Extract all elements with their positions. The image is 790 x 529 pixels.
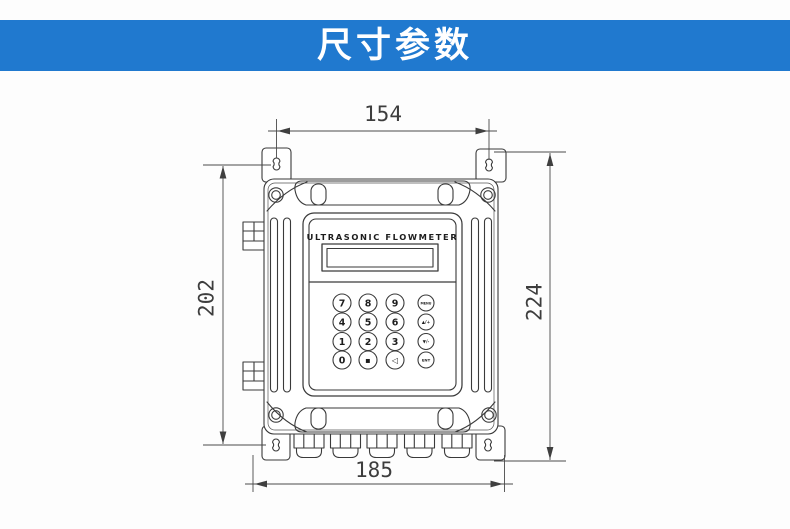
dimension-label-left: 202 — [195, 279, 219, 317]
arrowhead-down-icon — [220, 432, 227, 445]
arrowhead-up-icon — [220, 166, 227, 179]
arrowhead-right-icon — [491, 481, 504, 488]
svg-text:◁: ◁ — [391, 356, 398, 365]
svg-text:2: 2 — [365, 337, 372, 348]
svg-text:▼/-: ▼/- — [423, 339, 430, 345]
arrowhead-up-icon — [547, 154, 554, 167]
svg-text:ENT: ENT — [422, 357, 431, 362]
section-title-bar: 尺寸参数 — [0, 20, 790, 71]
dimension-label-top: 154 — [364, 102, 402, 126]
dimension-right-height: 224 — [494, 152, 566, 461]
svg-text:9: 9 — [392, 298, 399, 309]
hinge-block-bottom — [243, 362, 266, 390]
section-title: 尺寸参数 — [317, 28, 473, 63]
svg-text:0: 0 — [339, 355, 346, 366]
svg-text:▲/+: ▲/+ — [422, 320, 431, 326]
arrowhead-right-icon — [476, 128, 489, 135]
dimension-label-bottom: 185 — [355, 458, 393, 482]
svg-text:▪: ▪ — [365, 356, 370, 365]
dimension-top-width: 154 — [268, 102, 497, 160]
arrowhead-left-icon — [255, 481, 268, 488]
dimension-label-right: 224 — [523, 283, 547, 321]
svg-text:8: 8 — [365, 298, 372, 309]
mounting-bracket-top-right — [476, 149, 506, 182]
dimension-left-height: 202 — [195, 165, 272, 445]
svg-text:4: 4 — [339, 317, 346, 328]
device-label: ULTRASONIC FLOWMETER — [307, 232, 459, 242]
svg-text:1: 1 — [339, 337, 346, 348]
svg-text:3: 3 — [392, 337, 399, 348]
hinge-block-top — [243, 222, 266, 250]
svg-text:5: 5 — [365, 317, 372, 328]
arrowhead-left-icon — [278, 128, 291, 135]
dimension-drawing: ULTRASONIC FLOWMETER 7 8 9 MENU — [0, 0, 790, 529]
svg-text:7: 7 — [339, 298, 346, 309]
front-panel: ULTRASONIC FLOWMETER 7 8 9 MENU — [303, 213, 462, 396]
arrowhead-down-icon — [547, 447, 554, 460]
svg-text:MENU: MENU — [421, 301, 432, 305]
svg-text:6: 6 — [392, 317, 399, 328]
